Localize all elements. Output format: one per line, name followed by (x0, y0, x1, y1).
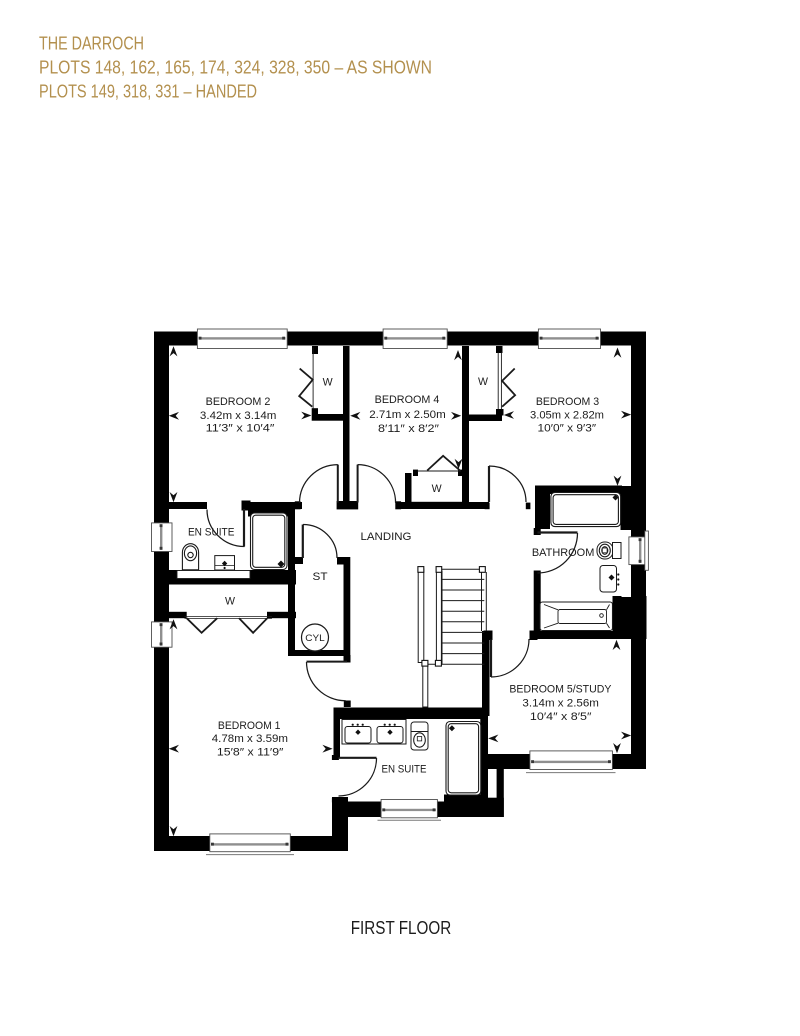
svg-text:BEDROOM 2: BEDROOM 2 (206, 396, 271, 408)
svg-text:W: W (225, 596, 235, 608)
svg-text:W: W (432, 483, 442, 495)
svg-text:BEDROOM 1: BEDROOM 1 (218, 720, 281, 732)
svg-text:LANDING: LANDING (361, 531, 412, 543)
svg-text:BEDROOM 5/STUDY: BEDROOM 5/STUDY (509, 684, 611, 696)
svg-text:W: W (323, 377, 333, 389)
svg-text:PLOTS 149, 318, 331 – HANDED: PLOTS 149, 318, 331 – HANDED (39, 80, 257, 101)
svg-text:EN SUITE: EN SUITE (188, 526, 235, 538)
svg-text:BATHROOM: BATHROOM (532, 547, 595, 559)
svg-text:FIRST FLOOR: FIRST FLOOR (351, 918, 452, 938)
svg-text:W: W (478, 376, 488, 388)
svg-text:CYL: CYL (305, 633, 325, 643)
svg-text:11′3″ x 10′4″: 11′3″ x 10′4″ (206, 422, 275, 434)
svg-text:PLOTS 148, 162, 165, 174, 324,: PLOTS 148, 162, 165, 174, 324, 328, 350 … (39, 57, 432, 78)
svg-text:3.14m x 2.56m: 3.14m x 2.56m (522, 698, 599, 710)
svg-text:15′8″ x 11′9″: 15′8″ x 11′9″ (217, 746, 284, 758)
svg-text:BEDROOM 4: BEDROOM 4 (375, 394, 440, 406)
svg-text:THE DARROCH: THE DARROCH (39, 33, 144, 54)
svg-text:ST: ST (313, 571, 329, 583)
svg-text:4.78m x 3.59m: 4.78m x 3.59m (212, 733, 288, 745)
svg-text:2.71m x 2.50m: 2.71m x 2.50m (369, 409, 446, 421)
svg-text:10′4″ x 8′5″: 10′4″ x 8′5″ (530, 711, 592, 723)
svg-text:3.05m x 2.82m: 3.05m x 2.82m (530, 410, 604, 422)
svg-text:EN SUITE: EN SUITE (382, 764, 427, 776)
svg-text:3.42m x 3.14m: 3.42m x 3.14m (200, 410, 277, 422)
svg-text:BEDROOM 3: BEDROOM 3 (536, 396, 599, 408)
svg-text:10′0″ x 9′3″: 10′0″ x 9′3″ (538, 423, 597, 435)
svg-text:8′11″ x 8′2″: 8′11″ x 8′2″ (378, 423, 439, 435)
